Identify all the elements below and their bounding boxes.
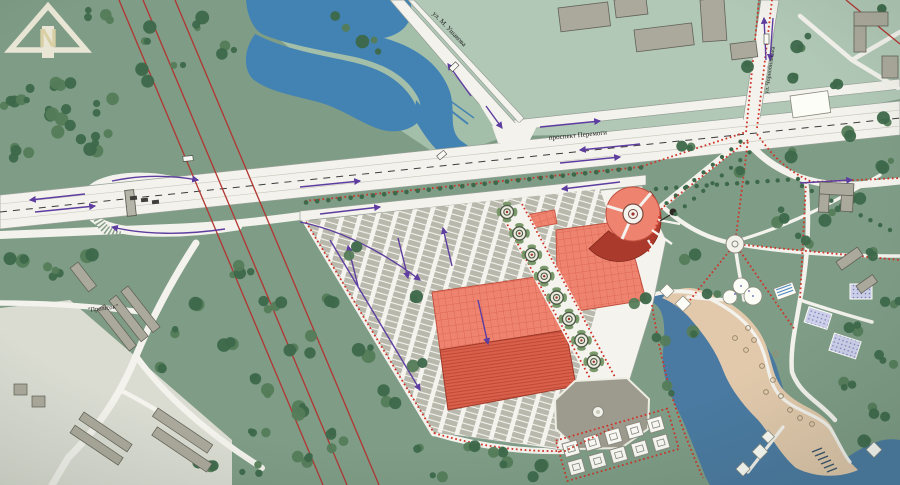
tree bbox=[255, 470, 262, 477]
row-tree bbox=[415, 189, 420, 194]
tree bbox=[52, 267, 60, 275]
tree bbox=[249, 429, 257, 437]
tree bbox=[877, 161, 890, 174]
tree bbox=[869, 408, 880, 419]
flowerbed-center bbox=[531, 254, 533, 256]
tree bbox=[640, 292, 652, 304]
row-tree bbox=[705, 183, 709, 187]
tree bbox=[170, 62, 177, 69]
tree bbox=[377, 384, 389, 396]
row-tree bbox=[583, 171, 588, 176]
tree bbox=[819, 214, 832, 227]
tree bbox=[264, 305, 272, 313]
row-tree bbox=[460, 184, 465, 189]
tree bbox=[736, 166, 745, 175]
tree bbox=[437, 471, 448, 482]
row-tree bbox=[572, 172, 577, 177]
tree bbox=[676, 141, 687, 152]
tree bbox=[43, 262, 52, 271]
tree bbox=[61, 104, 71, 114]
tree bbox=[367, 344, 374, 351]
tree bbox=[93, 100, 100, 107]
tree bbox=[91, 132, 100, 141]
row-tree bbox=[692, 178, 696, 182]
tree bbox=[857, 434, 870, 447]
tree bbox=[50, 77, 62, 89]
tree bbox=[687, 145, 693, 151]
building bbox=[730, 41, 758, 60]
tree bbox=[779, 213, 790, 224]
row-tree bbox=[561, 173, 566, 178]
tree bbox=[239, 469, 245, 475]
tree bbox=[352, 343, 366, 357]
row-tree bbox=[605, 169, 610, 174]
tree bbox=[472, 443, 480, 451]
tree bbox=[104, 129, 113, 138]
row-tree bbox=[745, 180, 749, 184]
tree bbox=[189, 297, 203, 311]
tree bbox=[844, 322, 855, 333]
row-tree bbox=[692, 197, 696, 201]
row-tree bbox=[471, 183, 476, 188]
row-tree bbox=[701, 170, 705, 174]
tree bbox=[778, 206, 785, 213]
row-tree bbox=[304, 200, 309, 205]
tree bbox=[660, 335, 671, 346]
tree bbox=[275, 296, 287, 308]
row-tree bbox=[360, 194, 365, 199]
tree bbox=[417, 358, 427, 368]
tree bbox=[83, 143, 96, 156]
flowerbed-center bbox=[580, 339, 582, 341]
tree bbox=[305, 330, 317, 342]
flowerbed-center bbox=[568, 318, 570, 320]
row-tree bbox=[348, 196, 353, 201]
row-tree bbox=[729, 166, 733, 170]
flowerbed-center bbox=[543, 275, 545, 277]
tree bbox=[216, 48, 228, 60]
row-tree bbox=[664, 186, 668, 190]
tree bbox=[292, 451, 304, 463]
tree bbox=[342, 24, 350, 32]
tree bbox=[180, 62, 186, 68]
row-tree bbox=[725, 182, 729, 186]
tree bbox=[9, 153, 19, 163]
tree bbox=[877, 111, 890, 124]
tree bbox=[233, 260, 244, 271]
flowerbed-center bbox=[593, 361, 595, 363]
row-tree bbox=[683, 204, 687, 208]
tree bbox=[157, 364, 166, 373]
tree bbox=[172, 326, 179, 333]
row-tree bbox=[888, 228, 892, 232]
tree bbox=[430, 472, 436, 478]
row-tree bbox=[729, 147, 733, 151]
tree bbox=[787, 73, 798, 84]
row-tree bbox=[720, 155, 724, 159]
row-tree bbox=[776, 178, 780, 182]
row-tree bbox=[786, 178, 790, 182]
tree bbox=[261, 428, 270, 437]
tree bbox=[141, 75, 154, 88]
tree bbox=[24, 97, 30, 103]
tree bbox=[76, 134, 86, 144]
tree bbox=[854, 321, 862, 329]
row-tree bbox=[594, 170, 599, 175]
row-tree bbox=[738, 158, 742, 162]
row-tree bbox=[755, 180, 759, 184]
tree bbox=[26, 84, 35, 93]
row-tree bbox=[735, 181, 739, 185]
tree bbox=[46, 107, 59, 120]
row-tree bbox=[438, 186, 443, 191]
tree bbox=[488, 447, 499, 458]
tree bbox=[344, 250, 355, 261]
row-tree bbox=[715, 183, 719, 187]
row-tree bbox=[538, 176, 543, 181]
tree bbox=[292, 407, 306, 421]
tree bbox=[534, 459, 547, 472]
row-tree bbox=[616, 168, 621, 173]
tree bbox=[790, 40, 803, 53]
tree bbox=[652, 333, 662, 343]
map-canvas: N проспект Перемоги ул. М. Ушакова ул. Ч… bbox=[0, 0, 900, 485]
tree bbox=[351, 241, 362, 252]
row-tree bbox=[393, 191, 398, 196]
tree bbox=[841, 384, 848, 391]
masterplan-map: N проспект Перемоги ул. М. Ушакова ул. Ч… bbox=[0, 0, 900, 485]
row-tree bbox=[765, 179, 769, 183]
tree bbox=[833, 79, 844, 90]
row-tree bbox=[382, 192, 387, 197]
row-tree bbox=[868, 218, 872, 222]
row-tree bbox=[326, 198, 331, 203]
tree bbox=[805, 33, 812, 40]
tree bbox=[844, 130, 856, 142]
tree bbox=[143, 20, 156, 33]
tree bbox=[23, 147, 34, 158]
row-tree bbox=[720, 173, 724, 177]
tree bbox=[231, 47, 237, 53]
tree bbox=[413, 445, 421, 453]
tree bbox=[144, 38, 151, 45]
tree bbox=[19, 255, 28, 264]
flowerbed-center bbox=[555, 296, 557, 298]
row-tree bbox=[527, 177, 532, 182]
tree bbox=[258, 296, 268, 306]
tree bbox=[795, 233, 802, 240]
tree bbox=[85, 7, 92, 14]
row-tree bbox=[747, 150, 751, 154]
building bbox=[882, 56, 898, 78]
row-tree bbox=[482, 182, 487, 187]
flowerbed-center bbox=[518, 232, 520, 234]
building bbox=[14, 384, 27, 395]
row-tree bbox=[800, 184, 804, 188]
park-circle-plaza bbox=[726, 235, 744, 253]
tree bbox=[371, 37, 378, 44]
tree bbox=[528, 471, 539, 482]
tree bbox=[848, 381, 856, 389]
row-tree bbox=[684, 185, 688, 189]
tree bbox=[106, 93, 119, 106]
tree bbox=[874, 350, 884, 360]
row-tree bbox=[810, 189, 814, 193]
row-tree bbox=[859, 213, 863, 217]
tree bbox=[330, 11, 340, 21]
tree bbox=[498, 447, 509, 458]
row-tree bbox=[796, 177, 800, 181]
tree bbox=[247, 268, 254, 275]
row-tree bbox=[494, 180, 499, 185]
tree bbox=[690, 330, 698, 338]
building bbox=[700, 0, 727, 42]
tree bbox=[284, 344, 297, 357]
tree bbox=[410, 290, 423, 303]
tree bbox=[250, 373, 261, 384]
tree bbox=[702, 289, 713, 300]
tree bbox=[389, 397, 401, 409]
tree bbox=[327, 443, 337, 453]
tree bbox=[880, 297, 890, 307]
tree bbox=[668, 390, 675, 397]
tree bbox=[339, 436, 349, 446]
tree bbox=[225, 337, 236, 348]
row-tree bbox=[549, 175, 554, 180]
building bbox=[32, 396, 45, 407]
row-tree bbox=[694, 184, 698, 188]
tree bbox=[51, 125, 64, 138]
row-tree bbox=[449, 185, 454, 190]
building bbox=[854, 26, 866, 52]
tree bbox=[65, 120, 76, 131]
row-tree bbox=[878, 223, 882, 227]
row-tree bbox=[639, 165, 644, 170]
tree bbox=[306, 453, 313, 460]
tree bbox=[254, 461, 262, 469]
row-tree bbox=[654, 187, 658, 191]
tree bbox=[499, 461, 507, 469]
tree bbox=[407, 360, 419, 372]
tree bbox=[785, 150, 798, 163]
row-tree bbox=[404, 190, 409, 195]
tree bbox=[85, 248, 98, 261]
tree bbox=[662, 380, 673, 391]
north-label: N bbox=[39, 23, 58, 53]
row-tree bbox=[315, 199, 320, 204]
row-tree bbox=[427, 187, 432, 192]
row-tree bbox=[628, 166, 633, 171]
row-tree bbox=[674, 185, 678, 189]
tree bbox=[192, 21, 200, 29]
row-tree bbox=[673, 212, 677, 216]
tree bbox=[375, 48, 381, 54]
tree bbox=[888, 158, 894, 164]
tree bbox=[93, 109, 101, 117]
row-tree bbox=[738, 140, 742, 144]
tree bbox=[629, 298, 640, 309]
row-tree bbox=[710, 181, 714, 185]
octagon-plaza bbox=[555, 378, 649, 449]
tree bbox=[328, 428, 336, 436]
row-tree bbox=[711, 163, 715, 167]
row-tree bbox=[337, 197, 342, 202]
row-tree bbox=[371, 193, 376, 198]
tree bbox=[100, 9, 112, 21]
tree bbox=[801, 235, 811, 245]
tree bbox=[264, 391, 272, 399]
row-tree bbox=[701, 189, 705, 193]
building-white bbox=[790, 91, 831, 118]
row-tree bbox=[829, 199, 833, 203]
row-tree bbox=[505, 179, 510, 184]
tree bbox=[889, 360, 898, 369]
tree bbox=[741, 60, 754, 73]
tree bbox=[135, 62, 148, 75]
row-tree bbox=[674, 193, 678, 197]
tree bbox=[356, 35, 370, 49]
tree bbox=[880, 412, 890, 422]
row-tree bbox=[516, 178, 521, 183]
tree bbox=[689, 248, 701, 260]
tree bbox=[304, 347, 315, 358]
building bbox=[854, 12, 888, 26]
tree bbox=[84, 13, 92, 21]
tree bbox=[679, 254, 690, 265]
tree bbox=[4, 252, 17, 265]
row-tree bbox=[664, 201, 668, 205]
flowerbed-center bbox=[506, 211, 508, 213]
tree bbox=[328, 296, 340, 308]
tree bbox=[866, 248, 874, 256]
tree bbox=[713, 290, 721, 298]
tree bbox=[65, 77, 77, 89]
